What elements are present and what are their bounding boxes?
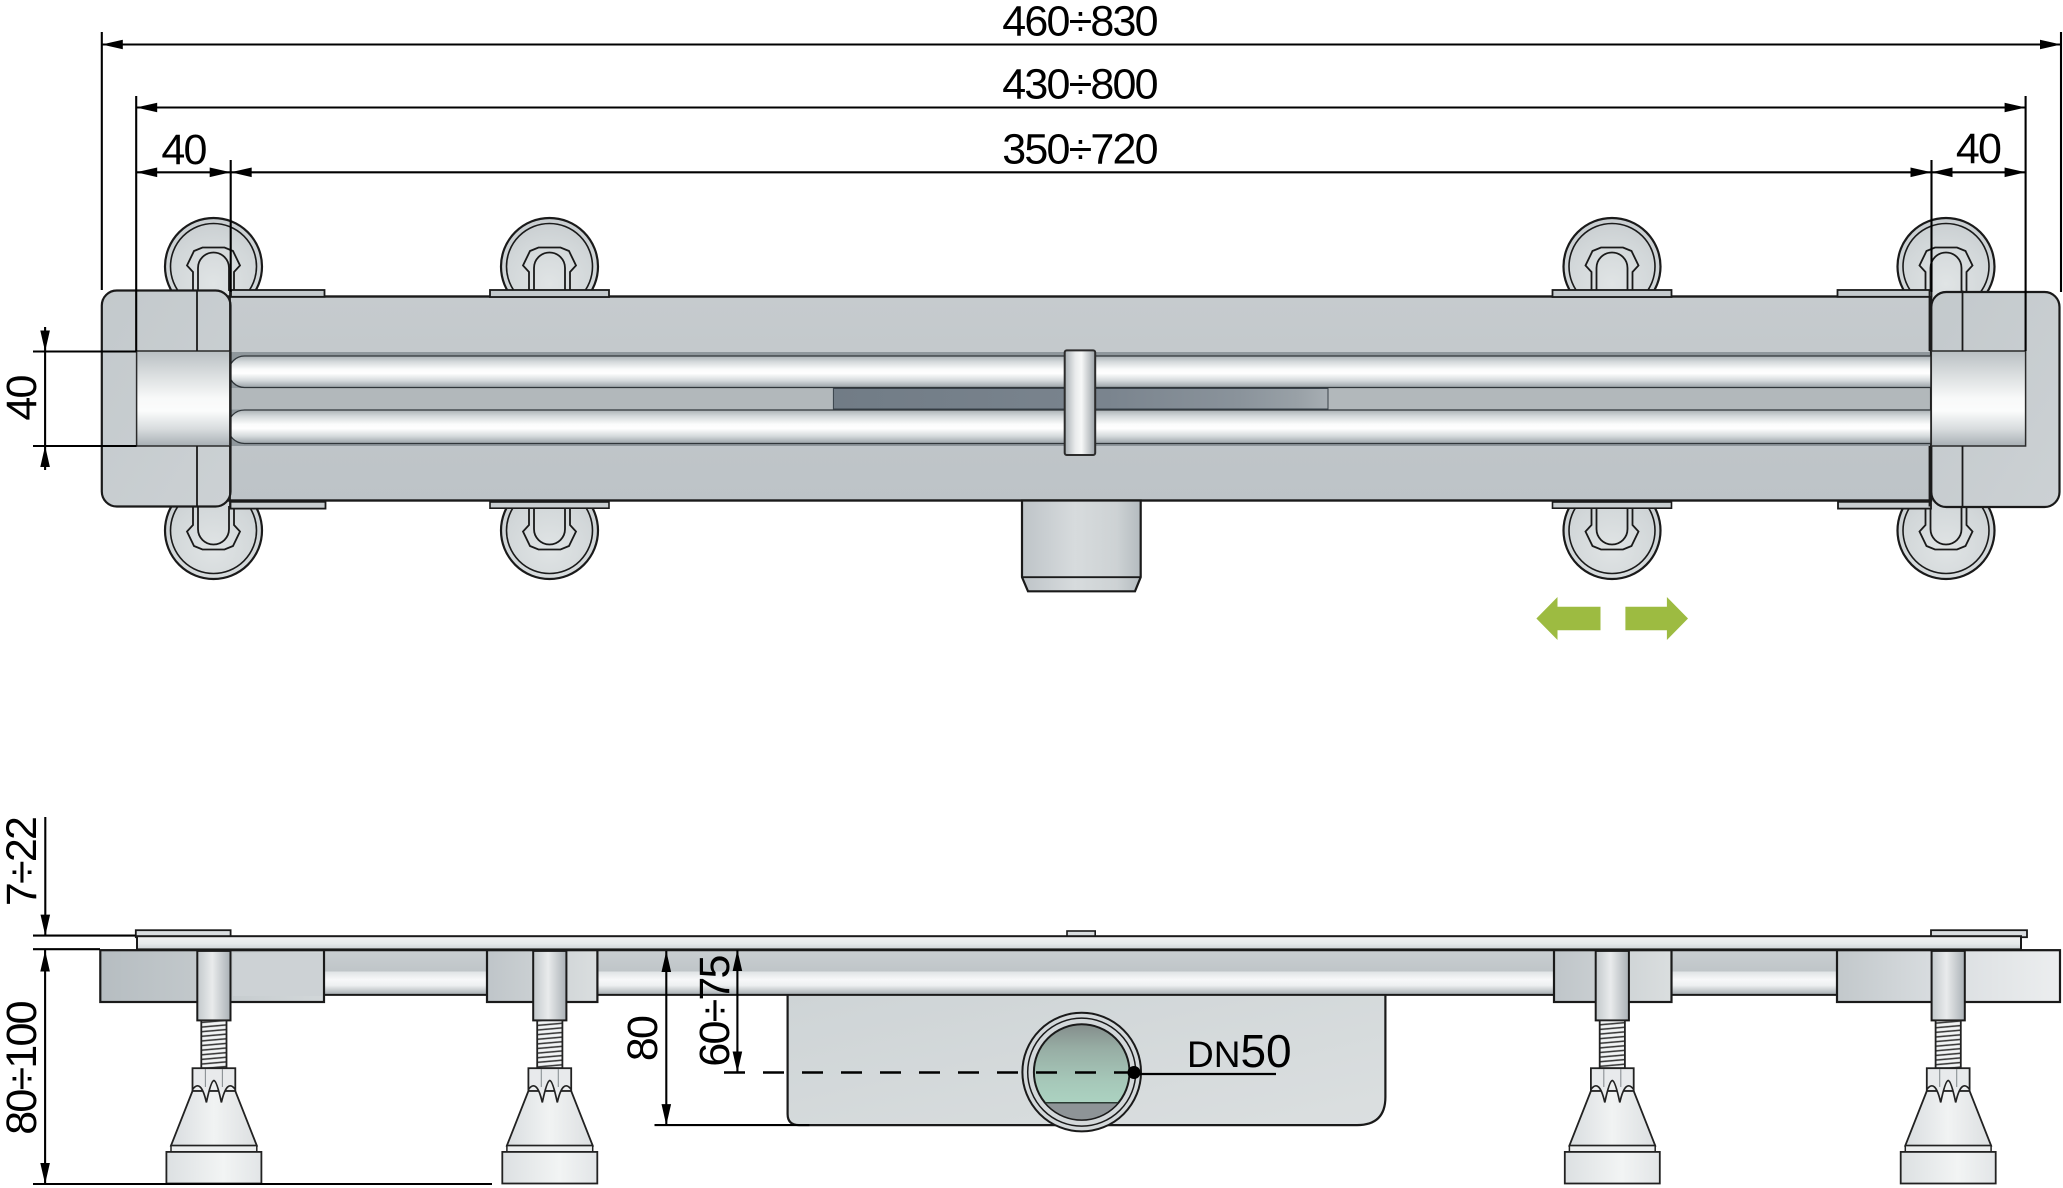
svg-text:80÷100: 80÷100 bbox=[0, 1001, 46, 1134]
svg-text:80: 80 bbox=[619, 1016, 667, 1061]
svg-text:40: 40 bbox=[0, 376, 46, 421]
svg-text:430÷800: 430÷800 bbox=[1002, 61, 1157, 109]
svg-text:7÷22: 7÷22 bbox=[0, 818, 46, 906]
svg-text:40: 40 bbox=[1956, 125, 2001, 173]
svg-text:350÷720: 350÷720 bbox=[1002, 126, 1157, 174]
svg-text:460÷830: 460÷830 bbox=[1002, 0, 1157, 46]
svg-text:40: 40 bbox=[161, 126, 206, 174]
svg-text:60÷75: 60÷75 bbox=[691, 955, 739, 1066]
